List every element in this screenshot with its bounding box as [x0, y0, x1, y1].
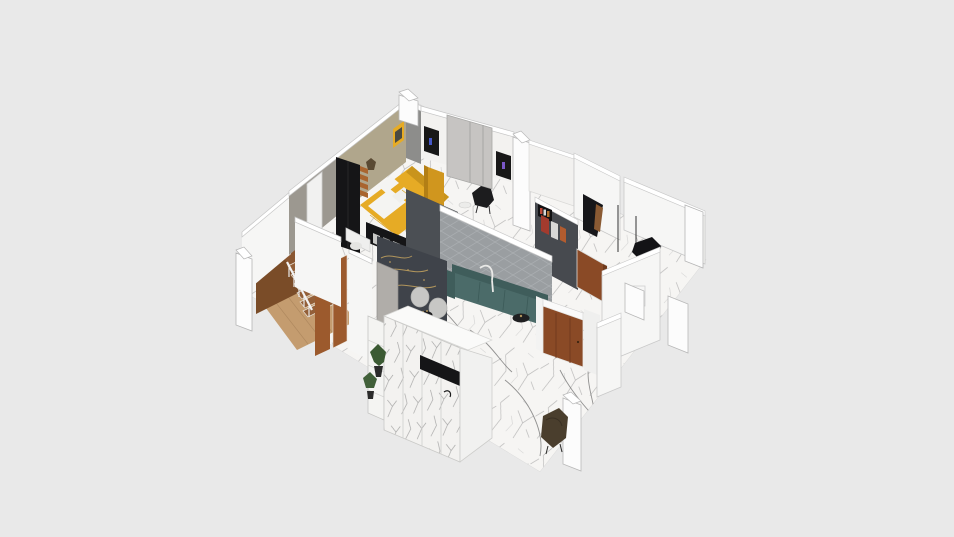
- entry-right-slab: [597, 317, 621, 397]
- right-column-2: [668, 296, 688, 353]
- book: [544, 210, 547, 216]
- art-print-orange: [560, 226, 566, 243]
- tv-1-glow: [429, 138, 432, 145]
- door-jamb-left: [536, 296, 543, 352]
- northeast-column: [513, 137, 530, 231]
- desk-chair: [350, 242, 362, 250]
- sliding-closet-panel: [447, 115, 492, 189]
- floorplan-render: [0, 0, 954, 537]
- art-print-white: [551, 221, 558, 240]
- dining-chair: [411, 287, 429, 307]
- book: [540, 208, 543, 214]
- small-round-table: [459, 202, 471, 208]
- book: [547, 211, 550, 217]
- door-knob: [577, 341, 579, 343]
- east-column: [685, 205, 703, 268]
- west-wall-column: [236, 253, 252, 331]
- gold-decor: [520, 315, 522, 317]
- tv-2-glow: [502, 162, 505, 169]
- floorplan-3d-viewport[interactable]: [0, 0, 954, 537]
